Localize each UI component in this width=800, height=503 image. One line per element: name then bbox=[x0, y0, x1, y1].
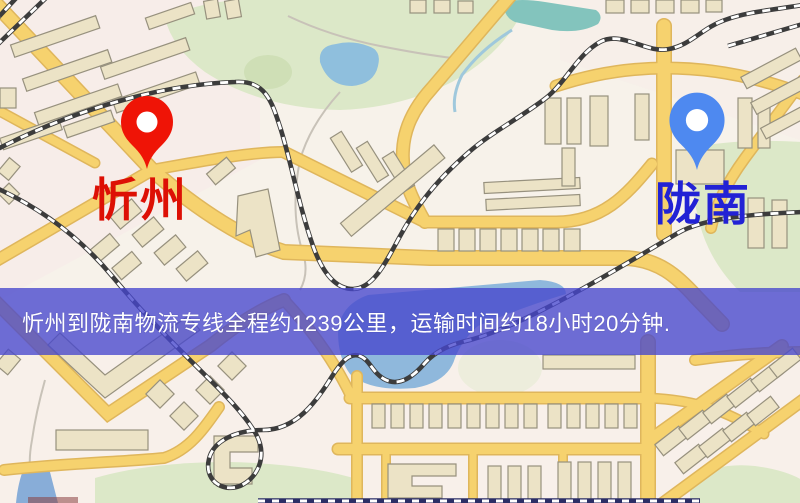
map-canvas: 忻州 陇南 bbox=[0, 0, 800, 503]
destination-label: 陇南 bbox=[655, 177, 751, 231]
origin-label: 忻州 bbox=[92, 173, 188, 227]
map-screenshot: 忻州 陇南 忻州到陇南物流专线全程约1239公里，运输时间约18小时20分钟. bbox=[0, 0, 800, 503]
info-banner-text: 忻州到陇南物流专线全程约1239公里，运输时间约18小时20分钟. bbox=[22, 306, 671, 338]
info-banner: 忻州到陇南物流专线全程约1239公里，运输时间约18小时20分钟. bbox=[0, 288, 800, 355]
